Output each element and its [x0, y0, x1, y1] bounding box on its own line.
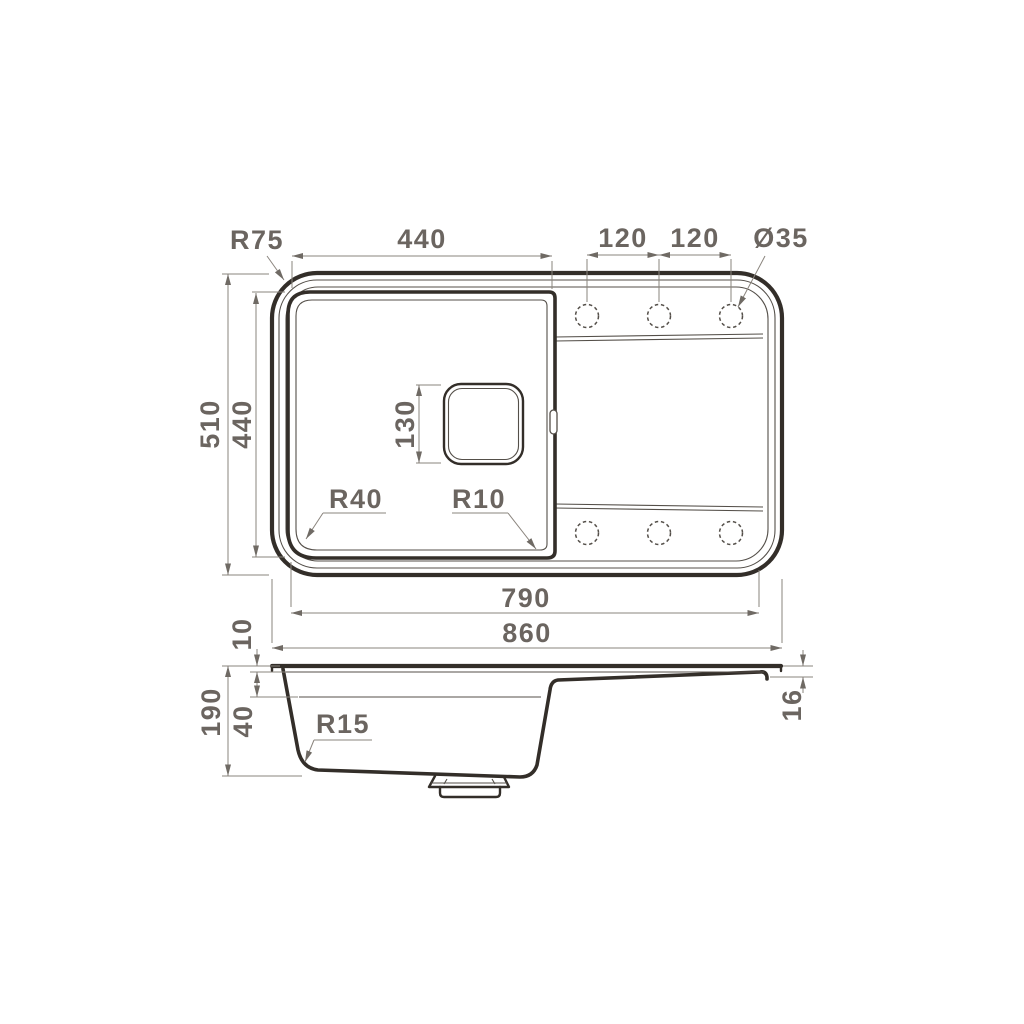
faucet-hole: [720, 305, 743, 328]
drainboard-edge-line: [555, 504, 763, 507]
drainboard-edge-line: [555, 338, 763, 341]
dim-overall-depth: 510: [195, 399, 225, 449]
dim-inner-length: 790: [501, 583, 551, 613]
dim-hole-pitch-left: 120: [598, 223, 648, 253]
faucet-hole: [720, 522, 743, 545]
dim-bowl-width: 440: [397, 224, 447, 254]
faucet-hole: [648, 522, 671, 545]
dim-hole-pitch-right: 120: [670, 223, 720, 253]
faucet-hole: [648, 305, 671, 328]
drainboard-edge-line: [555, 334, 763, 337]
dim-drainboard-drop: 16: [777, 688, 807, 721]
dim-hole-diameter: Ø35: [753, 223, 809, 253]
dim-bowl-depth: 440: [227, 399, 257, 449]
dim-bottom-corner-radius: R15: [316, 709, 370, 739]
dim-bowl-corner-radius-right: R10: [452, 484, 506, 514]
drain-outlet: [429, 776, 509, 797]
faucet-hole: [576, 522, 599, 545]
leader-rim-radius: [267, 256, 284, 280]
dim-overall-height: 190: [196, 687, 226, 737]
top-view: [272, 273, 782, 575]
dim-drain-size: 130: [390, 399, 420, 449]
dim-rim-corner-radius: R75: [230, 225, 284, 255]
dim-ledge-depth: 40: [228, 704, 258, 737]
faucet-hole: [576, 305, 599, 328]
dim-overall-length: 860: [502, 618, 552, 648]
bowl-outline: [288, 292, 555, 558]
leader-r15: [305, 740, 314, 762]
dim-bowl-corner-radius-left: R40: [329, 484, 383, 514]
sink-technical-drawing-page: R75 440 120 120 Ø35 510 440 130 R40 R10 …: [0, 0, 1024, 1024]
overflow-notch: [550, 410, 557, 434]
drain-foot: [440, 787, 500, 797]
drainboard-edge-line: [555, 508, 763, 511]
dim-rim-height: 10: [227, 617, 257, 650]
sink-drawing: R75 440 120 120 Ø35 510 440 130 R40 R10 …: [0, 0, 1024, 1024]
